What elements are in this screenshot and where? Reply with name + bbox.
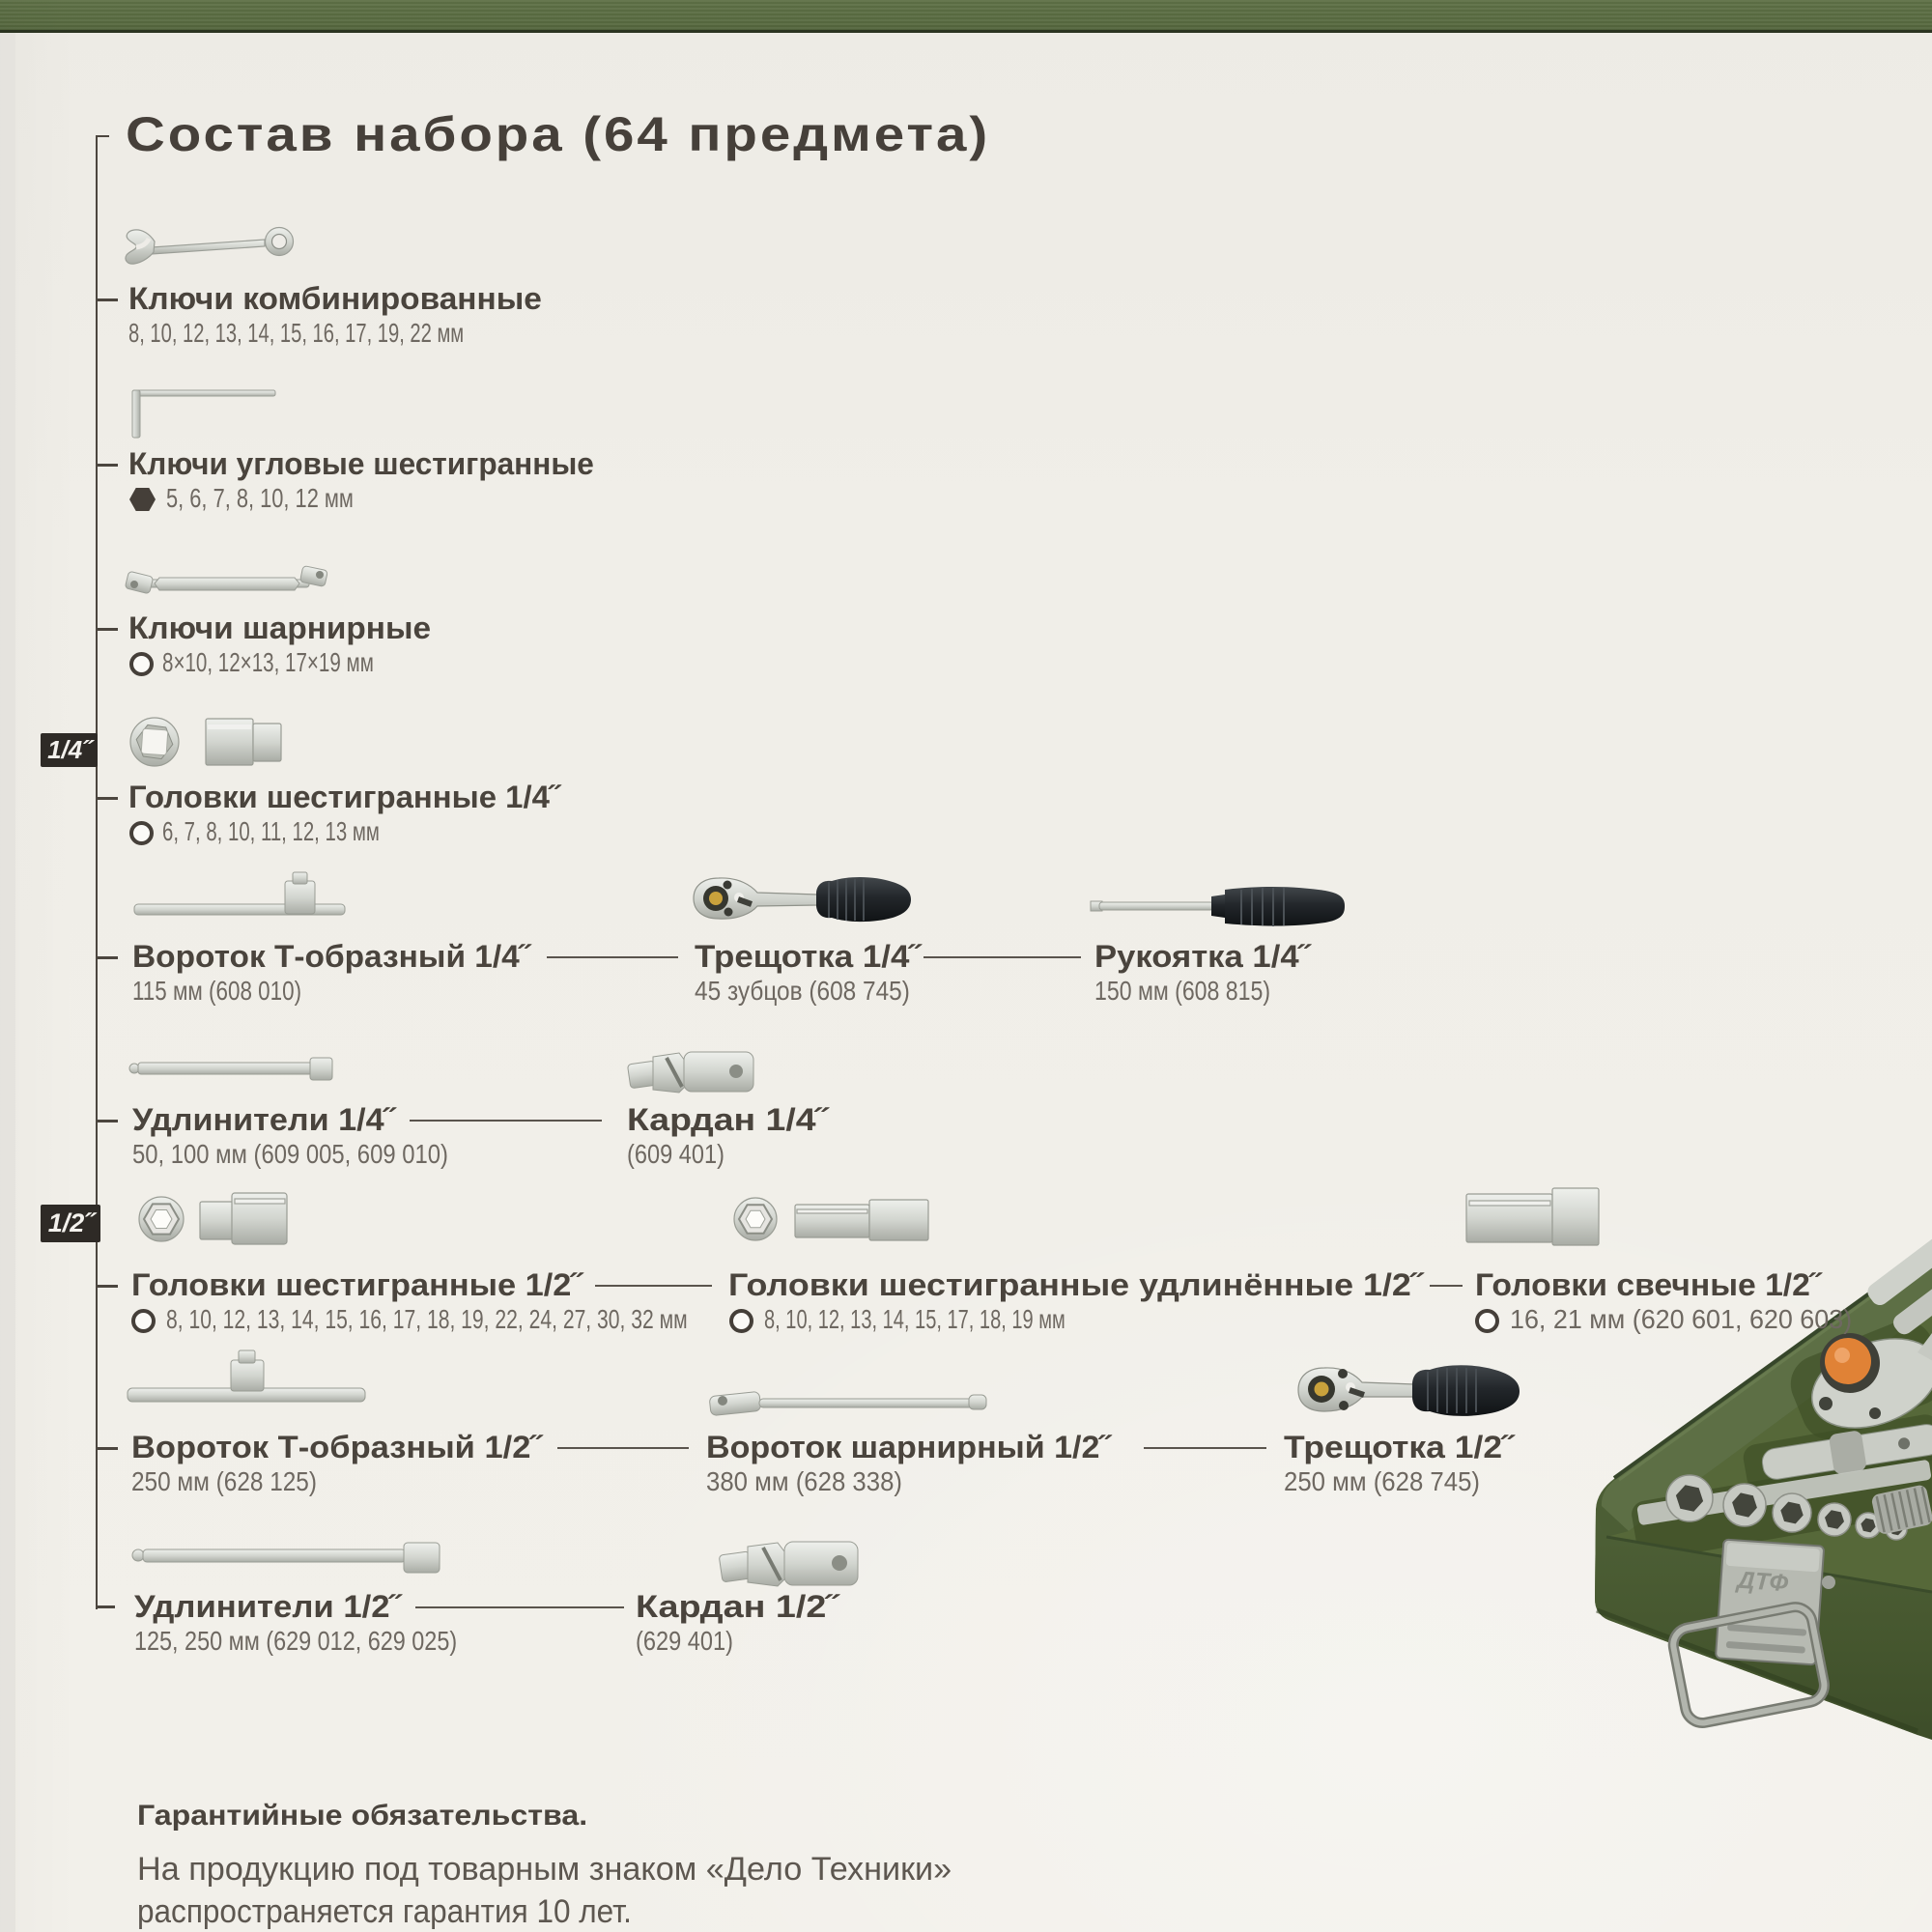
svg-text:ДТФ: ДТФ bbox=[1735, 1567, 1790, 1598]
